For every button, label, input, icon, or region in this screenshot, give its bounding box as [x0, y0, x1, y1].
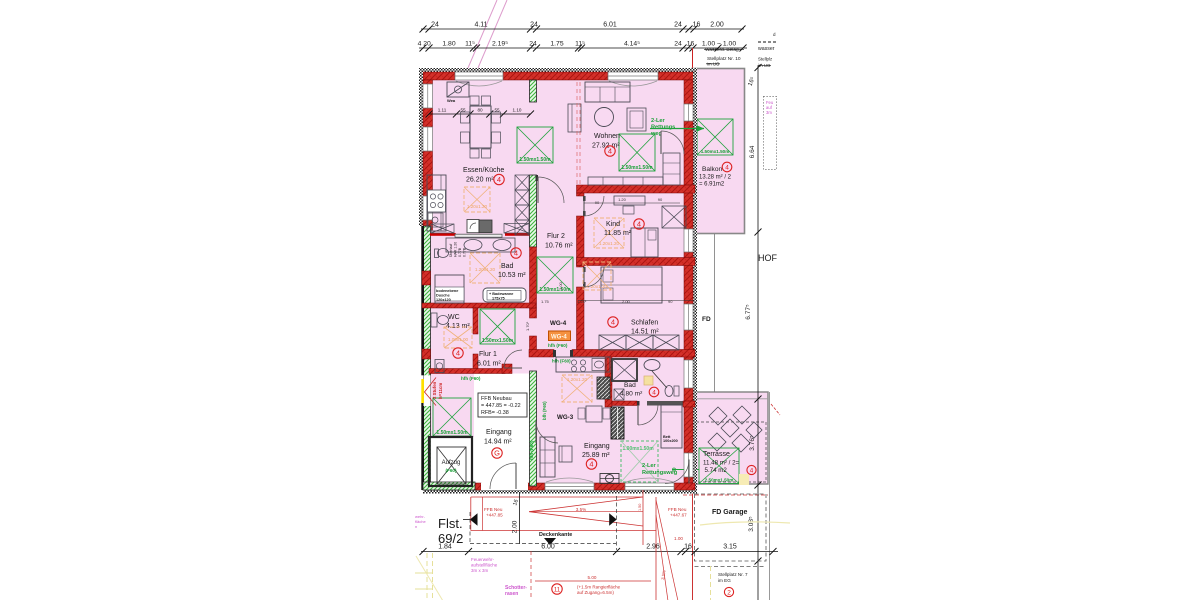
- svg-text:80: 80: [477, 108, 483, 113]
- svg-text:3.5%: 3.5%: [576, 507, 586, 512]
- svg-text:1.11: 1.11: [438, 108, 447, 113]
- svg-text:1.50: 1.50: [638, 504, 642, 511]
- svg-text:4.13 m²: 4.13 m²: [446, 323, 470, 330]
- svg-text:14.51 m²: 14.51 m²: [631, 329, 659, 336]
- svg-text:Flur 1: Flur 1: [479, 351, 497, 358]
- svg-text:Kind: Kind: [606, 221, 620, 228]
- svg-text:n: n: [415, 524, 417, 529]
- svg-text:11.48 m² / 2=: 11.48 m² / 2=: [703, 460, 740, 467]
- svg-text:11⁵: 11⁵: [465, 41, 475, 48]
- svg-text:FD Garage: FD Garage: [712, 509, 748, 516]
- svg-text:2.00: 2.00: [710, 22, 724, 29]
- svg-text:3.08⁵: 3.08⁵: [748, 516, 755, 532]
- svg-text:rasen: rasen: [505, 591, 518, 597]
- svg-text:4.11: 4.11: [474, 22, 487, 29]
- svg-text:wasser: wasser: [758, 46, 775, 52]
- svg-text:1.20x1.20: 1.20x1.20: [567, 377, 588, 382]
- svg-text:120x120: 120x120: [436, 298, 451, 302]
- svg-text:90: 90: [595, 200, 600, 205]
- svg-text:5.00: 5.00: [588, 575, 597, 580]
- svg-text:Dusche: Dusche: [436, 294, 450, 298]
- svg-text:16: 16: [687, 41, 695, 48]
- svg-text:HOF: HOF: [758, 253, 778, 263]
- svg-text:Stellplz: Stellplz: [758, 57, 772, 62]
- svg-text:2.19⁵: 2.19⁵: [492, 41, 508, 48]
- svg-text:Terrasse: Terrasse: [703, 451, 730, 458]
- svg-text:0.77B: 0.77B: [458, 247, 462, 257]
- svg-text:4: 4: [725, 165, 729, 172]
- svg-text:1.50mx1.50m: 1.50mx1.50m: [539, 287, 571, 293]
- svg-text:1.75: 1.75: [541, 299, 550, 304]
- svg-text:aufstellfläche: aufstellfläche: [471, 563, 498, 568]
- svg-text:Flur 2: Flur 2: [547, 233, 565, 240]
- svg-text:FFB Neu: FFB Neu: [484, 507, 503, 512]
- svg-text:6.01 m²: 6.01 m²: [477, 361, 501, 368]
- svg-text:bodenebene: bodenebene: [436, 289, 458, 293]
- svg-text:24: 24: [674, 22, 682, 29]
- svg-text:FFB Neu: FFB Neu: [668, 507, 687, 512]
- svg-text:11: 11: [554, 588, 561, 594]
- svg-text:6.00: 6.00: [541, 544, 555, 551]
- svg-text:25.89 m²: 25.89 m²: [582, 452, 610, 459]
- svg-text:4: 4: [608, 147, 612, 156]
- svg-text:Deckenkante: Deckenkante: [539, 532, 572, 538]
- svg-text:27.92 m²: 27.92 m²: [592, 143, 620, 150]
- svg-text:1.20x1.20: 1.20x1.20: [475, 267, 496, 272]
- svg-text:11.85 m²: 11.85 m²: [604, 230, 632, 237]
- svg-text:2.50mx1.50m: 2.50mx1.50m: [705, 478, 734, 483]
- svg-text:1.70⁵: 1.70⁵: [525, 321, 530, 331]
- svg-text:20: 20: [423, 41, 431, 48]
- svg-text:Bad: Bad: [501, 263, 514, 270]
- svg-text:175x75: 175x75: [492, 297, 505, 301]
- svg-text:WC: WC: [448, 314, 460, 321]
- svg-text:11⁵: 11⁵: [575, 41, 585, 48]
- svg-text:2.96: 2.96: [646, 544, 660, 551]
- svg-text:Aufzug: Aufzug: [442, 460, 461, 466]
- svg-text:1.50mx1.50m: 1.50mx1.50m: [482, 338, 514, 344]
- svg-text:2 Stufen: 2 Stufen: [432, 381, 437, 399]
- svg-text:1.20x1.20: 1.20x1.20: [599, 241, 620, 246]
- svg-text:1.20x1.20: 1.20x1.20: [467, 204, 488, 209]
- svg-text:hfh (F60): hfh (F60): [548, 343, 568, 348]
- svg-text:14.94 m²: 14.94 m²: [484, 439, 512, 446]
- svg-text:24: 24: [530, 22, 538, 29]
- svg-text:4.14⁵: 4.14⁵: [624, 41, 640, 48]
- svg-text:4: 4: [652, 390, 656, 397]
- svg-text:+447.85: +447.85: [486, 513, 503, 518]
- svg-text:Wasserd. Belag: Wasserd. Belag: [705, 47, 739, 53]
- svg-text:= 447.85 = -0.22: = 447.85 = -0.22: [481, 403, 521, 409]
- svg-text:= 6.91m2: = 6.91m2: [699, 182, 725, 188]
- svg-text:auf Zugang=6.5m): auf Zugang=6.5m): [577, 590, 614, 595]
- svg-text:10.76 m²: 10.76 m²: [545, 243, 573, 250]
- svg-text:2.00: 2.00: [558, 281, 563, 290]
- svg-text:1.75: 1.75: [550, 41, 563, 48]
- svg-text:4.80 m²: 4.80 m²: [620, 391, 643, 398]
- svg-text:3.15: 3.15: [723, 544, 737, 551]
- svg-text:1.84: 1.84: [438, 544, 452, 551]
- svg-text:Rettungsweg: Rettungsweg: [642, 470, 678, 476]
- svg-text:Feuerwehr-: Feuerwehr-: [471, 557, 495, 562]
- svg-text:1.00: 1.00: [674, 536, 683, 541]
- svg-text:5.74 m2: 5.74 m2: [705, 467, 728, 474]
- svg-text:FFB Neubau: FFB Neubau: [481, 396, 512, 402]
- svg-text:(F60): (F60): [446, 468, 457, 473]
- svg-text:4: 4: [637, 220, 641, 229]
- svg-text:24: 24: [431, 22, 439, 29]
- svg-text:WG-4: WG-4: [551, 335, 567, 341]
- svg-text:1.80: 1.80: [442, 41, 455, 48]
- svg-text:16: 16: [684, 544, 692, 551]
- svg-text:+ Badewanne: + Badewanne: [489, 292, 513, 296]
- svg-text:24: 24: [529, 41, 537, 48]
- svg-text:1.10: 1.10: [513, 108, 522, 113]
- svg-text:1.50mx1.50m: 1.50mx1.50m: [701, 149, 730, 154]
- svg-text:Flst.: Flst.: [438, 516, 463, 531]
- svg-text:hfh (F60): hfh (F60): [552, 359, 571, 364]
- svg-text:Stellplatz Nr. 7: Stellplatz Nr. 7: [718, 572, 748, 577]
- svg-text:HAR 1.20: HAR 1.20: [454, 242, 458, 257]
- svg-text:2: 2: [727, 590, 731, 597]
- svg-text:FD: FD: [702, 316, 711, 323]
- svg-text:6.64: 6.64: [749, 145, 756, 158]
- svg-text:90: 90: [658, 197, 663, 202]
- svg-text:16: 16: [693, 22, 701, 29]
- svg-text:Wohnen: Wohnen: [594, 133, 620, 140]
- svg-text:RFB= -0.38: RFB= -0.38: [481, 410, 509, 416]
- svg-text:4: 4: [497, 175, 501, 184]
- svg-text:1.00mx1.50m: 1.00mx1.50m: [623, 446, 655, 452]
- svg-text:2-Ler: 2-Ler: [642, 463, 657, 469]
- svg-text:4: 4: [750, 468, 754, 475]
- svg-text:im EG: im EG: [718, 578, 731, 583]
- svg-text:Eingang: Eingang: [486, 429, 512, 436]
- svg-text:+447.67: +447.67: [670, 513, 687, 518]
- svg-text:Eingang: Eingang: [584, 443, 610, 450]
- svg-text:4: 4: [418, 41, 422, 48]
- svg-text:1.20: 1.20: [618, 197, 627, 202]
- svg-text:1.50mx1.50m: 1.50mx1.50m: [519, 157, 551, 163]
- svg-text:90: 90: [668, 299, 673, 304]
- svg-text:4: 4: [611, 318, 615, 327]
- svg-text:1.00x1.00: 1.00x1.00: [448, 337, 469, 342]
- svg-text:3m x 3m: 3m x 3m: [471, 568, 489, 573]
- svg-text:4: 4: [589, 460, 593, 469]
- svg-text:0.77B: 0.77B: [463, 247, 467, 257]
- svg-text:G: G: [494, 449, 500, 458]
- svg-text:26.20 m²: 26.20 m²: [466, 177, 494, 184]
- svg-text:1.50mx1.50m: 1.50mx1.50m: [436, 430, 468, 436]
- svg-text:Bad: Bad: [624, 382, 636, 389]
- svg-text:1.24⁵: 1.24⁵: [577, 299, 587, 304]
- svg-text:100x200: 100x200: [663, 439, 678, 443]
- svg-text:Wea: Wea: [447, 98, 456, 103]
- svg-text:2-Ler: 2-Ler: [651, 118, 666, 124]
- svg-text:24: 24: [674, 41, 682, 48]
- svg-text:WG-4: WG-4: [550, 320, 567, 327]
- svg-text:3m: 3m: [766, 110, 772, 115]
- svg-text:hfh (F60): hfh (F60): [529, 440, 534, 460]
- svg-text:4: 4: [514, 249, 518, 258]
- svg-text:6.77⁵: 6.77⁵: [745, 304, 752, 320]
- svg-text:2.00: 2.00: [512, 520, 519, 533]
- svg-text:WG-3: WG-3: [557, 414, 574, 421]
- svg-text:4: 4: [456, 349, 460, 358]
- svg-text:1.50mx1.50m: 1.50mx1.50m: [621, 165, 653, 171]
- svg-text:3.76⁵: 3.76⁵: [749, 435, 756, 451]
- svg-text:Essen/Küche: Essen/Küche: [463, 167, 504, 174]
- svg-text:bfh (F60): bfh (F60): [542, 401, 547, 420]
- svg-text:(+1.5m Rangierfläche: (+1.5m Rangierfläche: [577, 585, 621, 590]
- svg-text:2.00: 2.00: [622, 299, 631, 304]
- svg-text:10.53 m²: 10.53 m²: [498, 272, 526, 279]
- svg-text:6.01: 6.01: [603, 22, 617, 29]
- svg-text:hfh (F60): hfh (F60): [461, 376, 481, 381]
- svg-text:Rettungs: Rettungs: [651, 125, 675, 131]
- svg-text:13.28 m² / 2: 13.28 m² / 2: [699, 175, 732, 181]
- svg-text:Überlauf: Überlauf: [449, 244, 453, 257]
- svg-text:1.00 ~ 1.00: 1.00 ~ 1.00: [702, 41, 736, 48]
- svg-text:h=11cm: h=11cm: [438, 383, 443, 399]
- svg-text:Balkon: Balkon: [702, 166, 722, 173]
- svg-text:Schlafen: Schlafen: [631, 320, 658, 327]
